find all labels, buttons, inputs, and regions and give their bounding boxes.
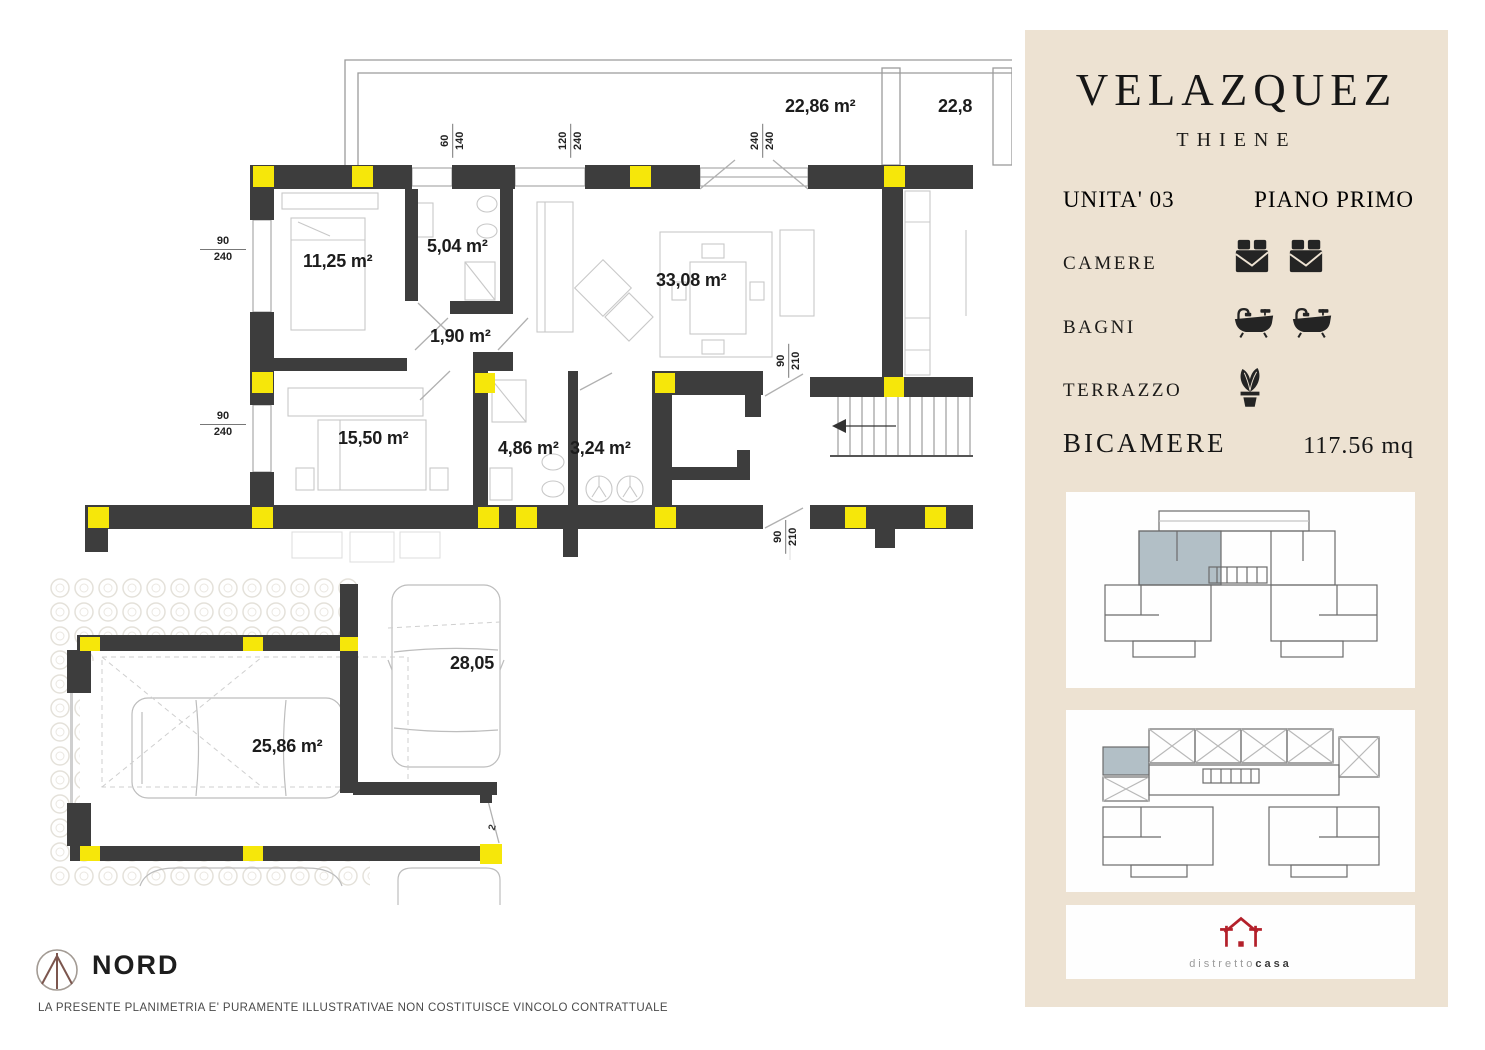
room-label-soggiorno: 33,08 m² [656,271,726,289]
bagni-icons [1233,302,1333,340]
planimetria-sheet: 22,86 m² 22,8 11,25 m² 5,04 m² 1,90 m² 3… [0,0,1485,1050]
north-label: NORD [92,950,180,981]
logo-bold: casa [1255,958,1291,970]
keyplan-ground-drawing [1081,721,1401,881]
dim-door-90-210-b: 90210 [766,520,806,554]
dim-window-60-140: 60140 [430,118,476,164]
room-label-camera-2: 15,50 m² [338,429,408,447]
adjacent-unit-hints [292,529,790,562]
dim-window-240-240: 240240 [740,118,786,164]
disclaimer-text: LA PRESENTE PLANIMETRIA E' PURAMENTE ILL… [38,1002,668,1014]
bed-icon [1287,236,1325,276]
agency-logo-box: distrettocasa [1066,905,1415,979]
dim-window-90-240-b: 90240 [200,401,246,447]
project-title: VELAZQUEZ [1025,68,1448,113]
feature-label-bagni: BAGNI [1063,318,1136,337]
room-label-garage: 25,86 m² [252,737,322,755]
bathtub-icon [1233,302,1275,340]
project-city: THIENE [1025,130,1448,150]
room-label-terrazzo-1: 22,86 m² [785,97,855,115]
room-label-posto-auto: 28,05 [450,654,494,672]
feature-label-camere: CAMERE [1063,254,1157,273]
keyplan-floor-box [1066,492,1415,688]
agency-logo-text: distrettocasa [1189,958,1292,970]
floor-label: PIANO PRIMO [1254,188,1414,211]
room-label-camera-1: 11,25 m² [303,252,372,270]
distrettocasa-house-icon [1215,914,1267,954]
room-label-terrazzo-2: 22,8 [938,97,972,115]
plant-icon [1233,363,1267,409]
north-compass-icon [33,946,81,994]
unit-label: UNITA' 03 [1063,188,1175,211]
room-label-disimpegno: 1,90 m² [430,327,491,345]
info-panel: VELAZQUEZ THIENE UNITA' 03 PIANO PRIMO C… [1025,30,1448,1007]
terrazzo-icons [1233,363,1267,409]
keyplan-ground-box [1066,710,1415,892]
camere-icons [1233,236,1325,276]
keyplan-floor-drawing [1081,505,1401,675]
logo-light: distretto [1189,958,1255,970]
dim-window-90-240-a: 90240 [200,226,246,272]
windows [253,168,808,472]
feature-label-terrazzo: TERRAZZO [1063,381,1182,400]
bed-icon [1233,236,1271,276]
room-label-bagno-2: 4,86 m² [498,439,559,457]
bathtub-icon [1291,302,1333,340]
apartment-type: BICAMERE [1063,430,1227,457]
room-label-lavanderia: 3,24 m² [570,439,631,457]
room-label-bagno-1: 5,04 m² [427,237,488,255]
staircase [830,397,973,456]
dim-door-90-210-a: 90210 [766,338,812,384]
dim-window-120-240: 120240 [548,118,594,164]
total-area: 117.56 mq [1303,434,1414,458]
